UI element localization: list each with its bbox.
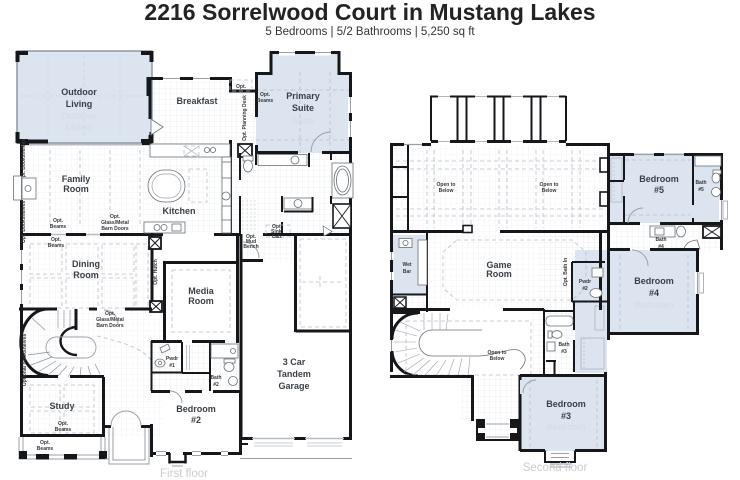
svg-text:Second floor: Second floor: [523, 462, 588, 474]
svg-text:Living: Living: [66, 122, 93, 132]
svg-text:Wet: Wet: [402, 262, 411, 268]
svg-text:#2: #2: [213, 382, 219, 388]
svg-text:#2: #2: [191, 415, 201, 425]
svg-text:5 Bedrooms | 5/2 Bathrooms | 5: 5 Bedrooms | 5/2 Bathrooms | 5,250 sq ft: [265, 26, 475, 38]
svg-text:Beams: Beams: [50, 224, 67, 230]
svg-text:Barn Doors: Barn Doors: [96, 323, 123, 329]
svg-text:Bedroom: Bedroom: [639, 174, 679, 184]
svg-text:Beams: Beams: [37, 446, 54, 452]
svg-text:Living: Living: [66, 99, 93, 109]
svg-text:Bedroom: Bedroom: [176, 404, 216, 414]
svg-text:#5: #5: [698, 187, 704, 193]
svg-text:Opt. Planning Desk: Opt. Planning Desk: [242, 95, 248, 141]
svg-text:3 Car: 3 Car: [283, 357, 306, 367]
svg-text:Outdoor: Outdoor: [61, 87, 97, 97]
svg-text:Outdoor: Outdoor: [61, 111, 97, 121]
svg-text:Bath: Bath: [210, 375, 221, 381]
svg-text:Opt. Hutch: Opt. Hutch: [153, 259, 159, 285]
svg-text:Bar: Bar: [403, 269, 411, 275]
svg-text:Bench: Bench: [243, 244, 258, 250]
svg-text:Room: Room: [486, 269, 512, 279]
svg-text:Pwdr: Pwdr: [579, 279, 591, 285]
svg-text:Media: Media: [188, 286, 215, 296]
svg-text:Bedroom: Bedroom: [634, 300, 674, 310]
svg-text:Opt. Bookshelves: Opt. Bookshelves: [21, 201, 27, 243]
svg-text:Bath: Bath: [655, 237, 666, 243]
svg-text:Optional Bookshelves: Optional Bookshelves: [22, 334, 28, 387]
svg-text:#3: #3: [561, 411, 571, 421]
svg-text:Family: Family: [62, 174, 91, 184]
svg-text:Room: Room: [73, 270, 99, 280]
svg-text:Tandem: Tandem: [277, 369, 311, 379]
svg-text:Beams: Beams: [257, 98, 274, 104]
svg-text:Dining: Dining: [72, 259, 100, 269]
svg-text:Pwdr: Pwdr: [166, 356, 178, 362]
svg-text:Bedroom: Bedroom: [546, 422, 586, 432]
svg-text:#1: #1: [169, 363, 175, 369]
svg-text:Barn Doors: Barn Doors: [101, 226, 128, 232]
svg-text:Bedroom: Bedroom: [634, 276, 674, 286]
svg-text:Opt. Bookshelves: Opt. Bookshelves: [21, 139, 27, 181]
svg-text:Bedroom: Bedroom: [546, 399, 586, 409]
svg-text:Below: Below: [439, 188, 454, 194]
svg-text:Suite: Suite: [292, 116, 314, 126]
svg-text:Below: Below: [542, 188, 557, 194]
svg-text:Kitchen: Kitchen: [162, 206, 195, 216]
svg-text:#5: #5: [654, 185, 664, 195]
svg-text:First floor: First floor: [160, 468, 208, 480]
svg-text:Beams: Beams: [55, 427, 72, 433]
svg-text:Garage: Garage: [278, 381, 309, 391]
svg-text:#4: #4: [649, 288, 659, 298]
svg-text:Bath: Bath: [558, 342, 569, 348]
svg-text:2216 Sorrelwood Court in Musta: 2216 Sorrelwood Court in Mustang Lakes: [144, 0, 595, 25]
svg-text:Primary: Primary: [286, 91, 320, 101]
svg-text:#3: #3: [561, 349, 567, 355]
svg-text:Room: Room: [188, 296, 214, 306]
svg-text:Opt.: Opt.: [236, 84, 247, 90]
svg-text:Below: Below: [490, 356, 505, 362]
svg-text:Room: Room: [63, 184, 89, 194]
svg-text:Beams: Beams: [48, 243, 65, 249]
svg-text:#2: #2: [582, 286, 588, 292]
svg-text:Bath: Bath: [695, 180, 706, 186]
svg-text:Suite: Suite: [292, 103, 314, 113]
svg-text:Study: Study: [49, 401, 74, 411]
svg-text:Opt. Bath In: Opt. Bath In: [563, 258, 569, 286]
svg-text:Cab.: Cab.: [272, 234, 283, 240]
svg-text:Breakfast: Breakfast: [176, 96, 217, 106]
